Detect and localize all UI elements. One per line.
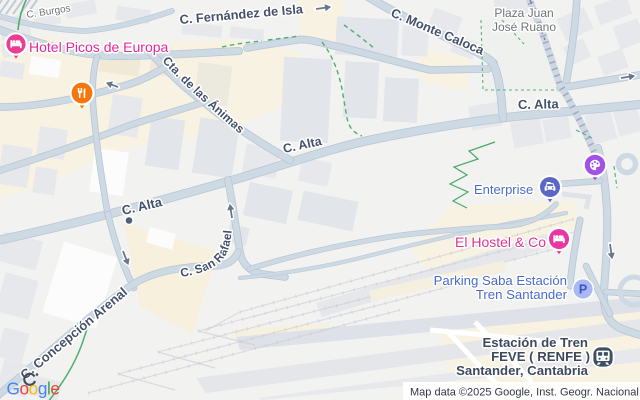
svg-text:El Hostel & Co: El Hostel & Co xyxy=(455,234,546,250)
svg-text:Tren Santander: Tren Santander xyxy=(476,287,568,302)
svg-text:FEVE ( RENFE ): FEVE ( RENFE ) xyxy=(491,349,590,364)
svg-text:José Ruano: José Ruano xyxy=(492,20,556,34)
svg-text:Map data ©2025 Google, Inst. G: Map data ©2025 Google, Inst. Geogr. Naci… xyxy=(410,387,639,399)
svg-text:Enterprise: Enterprise xyxy=(474,182,533,197)
svg-text:Hotel Picos de Europa: Hotel Picos de Europa xyxy=(29,39,169,55)
svg-text:Parking Saba Estación: Parking Saba Estación xyxy=(434,273,567,288)
svg-text:C. Alta: C. Alta xyxy=(518,96,560,112)
svg-text:Estación de Tren: Estación de Tren xyxy=(482,335,588,350)
svg-text:P: P xyxy=(579,282,587,296)
svg-text:Plaza Juan: Plaza Juan xyxy=(494,6,553,20)
svg-text:Google: Google xyxy=(7,379,60,399)
svg-text:Santander, Cantabria: Santander, Cantabria xyxy=(456,363,589,378)
